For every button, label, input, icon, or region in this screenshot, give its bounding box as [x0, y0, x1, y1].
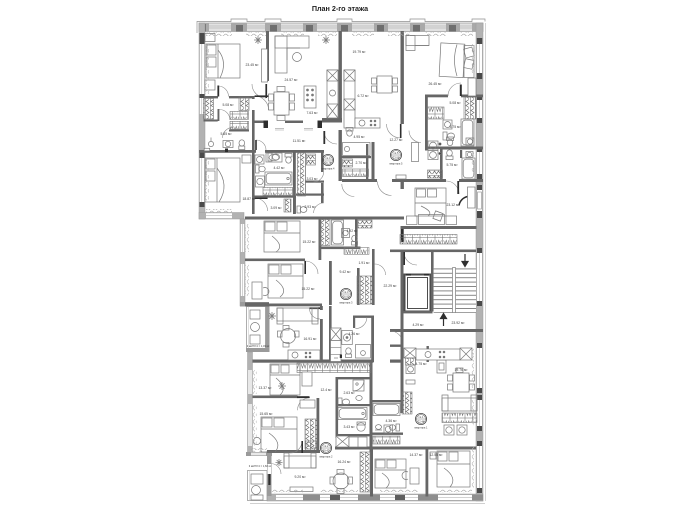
svg-text:15.22 м²: 15.22 м² — [302, 287, 316, 291]
svg-text:73.06: 73.06 — [393, 156, 400, 160]
svg-text:19.79 м²: 19.79 м² — [353, 50, 367, 54]
svg-text:квартира 3: квартира 3 — [340, 301, 354, 305]
svg-text:5.85 м²: 5.85 м² — [220, 132, 232, 136]
svg-text:12.27 м²: 12.27 м² — [390, 138, 404, 142]
svg-text:15.22 м²: 15.22 м² — [303, 240, 317, 244]
svg-text:16.91 м²: 16.91 м² — [304, 337, 318, 341]
svg-text:№ 4: № 4 — [326, 156, 332, 160]
svg-text:9.20 м²: 9.20 м² — [294, 475, 306, 479]
svg-text:69.47: 69.47 — [323, 449, 330, 453]
svg-text:12.4 м²: 12.4 м² — [320, 388, 332, 392]
svg-text:11.51 м²: 11.51 м² — [293, 139, 307, 143]
svg-text:23.92 м²: 23.92 м² — [452, 321, 466, 325]
svg-text:5.75 м²: 5.75 м² — [446, 163, 458, 167]
svg-text:24.57 м²: 24.57 м² — [285, 78, 299, 82]
svg-text:2.93 м²: 2.93 м² — [304, 205, 316, 209]
svg-text:12.55 м²: 12.55 м² — [430, 453, 444, 457]
svg-text:квартира 1: квартира 1 — [415, 426, 429, 430]
svg-text:7.63 м²: 7.63 м² — [306, 111, 318, 115]
svg-text:26.45 м²: 26.45 м² — [429, 82, 443, 86]
svg-text:4.95 м²: 4.95 м² — [353, 135, 365, 139]
svg-text:квартира 2: квартира 2 — [320, 455, 334, 459]
svg-text:23.12 м²: 23.12 м² — [447, 203, 461, 207]
svg-text:18.87 м²: 18.87 м² — [243, 197, 257, 201]
svg-text:2.70 м²: 2.70 м² — [355, 161, 367, 165]
svg-text:19.76 м²: 19.76 м² — [455, 368, 469, 372]
svg-text:квартира 5: квартира 5 — [390, 162, 404, 166]
svg-text:№ 3: № 3 — [344, 290, 350, 294]
svg-text:14.37 м²: 14.37 м² — [410, 453, 424, 457]
svg-text:План 2-го этажа: План 2-го этажа — [312, 4, 369, 13]
svg-text:3.43 м²: 3.43 м² — [343, 425, 355, 429]
svg-text:15.65 м²: 15.65 м² — [260, 412, 274, 416]
svg-text:5.08 м²: 5.08 м² — [222, 103, 234, 107]
svg-text:76.00: 76.00 — [343, 295, 350, 299]
svg-text:4.42 м²: 4.42 м² — [273, 166, 285, 170]
svg-text:4.92 м²: 4.92 м² — [346, 229, 358, 233]
svg-text:9.42 м²: 9.42 м² — [339, 270, 351, 274]
svg-text:5.75 м²: 5.75 м² — [449, 125, 461, 129]
svg-text:2.63 м²: 2.63 м² — [343, 391, 355, 395]
svg-text:4.29 м²: 4.29 м² — [412, 323, 424, 327]
svg-text:квартира 4: квартира 4 — [322, 167, 336, 171]
svg-text:72.44: 72.44 — [418, 420, 425, 424]
svg-text:№ 2: № 2 — [324, 444, 330, 448]
svg-text:3 кв/ПЛ.3 = 1,82 м²: 3 кв/ПЛ.3 = 1,82 м² — [249, 464, 272, 468]
svg-text:76.74: 76.74 — [325, 161, 332, 165]
svg-text:№ 5: № 5 — [394, 151, 400, 155]
svg-text:22.29 м²: 22.29 м² — [384, 284, 398, 288]
svg-text:1.91 м²: 1.91 м² — [358, 261, 370, 265]
svg-text:4.75 м²: 4.75 м² — [415, 362, 427, 366]
svg-text:№ 1: № 1 — [419, 415, 425, 419]
svg-text:16.24 м²: 16.24 м² — [338, 460, 352, 464]
svg-text:23.45 м²: 23.45 м² — [246, 63, 260, 67]
svg-text:3.03 м²: 3.03 м² — [306, 177, 318, 181]
svg-text:3.09 м²: 3.09 м² — [270, 206, 282, 210]
svg-text:4.36 м²: 4.36 м² — [385, 419, 397, 423]
svg-text:13.37 м²: 13.37 м² — [259, 386, 273, 390]
svg-text:5.08 м²: 5.08 м² — [449, 101, 461, 105]
svg-text:3 кв/ПЛ.3 = 1,03 м²: 3 кв/ПЛ.3 = 1,03 м² — [247, 344, 270, 348]
svg-text:6.72 м²: 6.72 м² — [357, 94, 369, 98]
svg-text:4.26 м²: 4.26 м² — [348, 332, 360, 336]
